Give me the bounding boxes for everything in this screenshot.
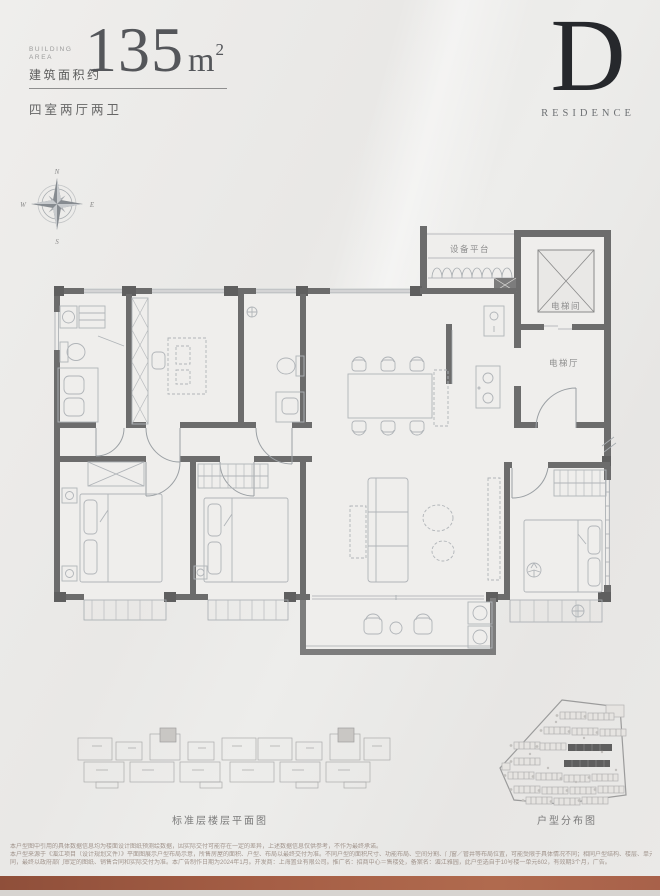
compass-n: N [54,168,60,176]
floorplan-poster: BUILDING AREA 建筑面积约 135 m 2 四室两厅两卫 D RES… [0,0,660,896]
building-area-eng-line1: BUILDING [29,46,73,54]
disclaimer-line-2: 本户型来源于《湄江项目（设计规划文件）》平面图展示户型布局示意，所售房屋的面积、… [10,851,652,859]
building-area-eng-label: BUILDING AREA [29,46,73,61]
distribution-diagram [490,692,640,810]
brand-block: D RESIDENCE [533,6,643,119]
area-value: 135 [85,18,184,82]
standard-floor-caption: 标准层楼层平面图 [138,812,302,827]
highlighted-buildings [564,744,612,767]
equipment-platform-label: 设备平台 [450,244,490,254]
standard-floor-diagram [62,722,398,798]
area-figure: 135 m 2 [85,18,224,82]
disclaimer-line-1: 本户型图中引用的具体数据信息均为楼面设计图纸预测绘数据，因实际交付可能存在一定的… [10,843,652,851]
compass-w: W [20,201,27,209]
disclaimer-line-3: 同，最终以政府部门审定的图纸、销售合同和实际交付为准。本广告制作日期为2024年… [10,859,652,867]
accent-bar [0,876,660,890]
brand-word: RESIDENCE [533,108,643,119]
elevator-hall-label: 电梯厅 [549,358,579,368]
brand-letter: D [533,6,643,106]
distribution-caption: 户型分布图 [505,812,629,827]
header-divider [29,88,227,89]
area-superscript: 2 [215,40,224,60]
accent-bar-under [0,890,660,896]
area-unit: m [188,42,214,80]
elevator-room-label: 电梯间 [551,301,581,311]
building-area-eng-line2: AREA [29,54,73,62]
layout-spec: 四室两厅两卫 [29,99,122,118]
compass-e: E [89,201,95,209]
floor-plan-svg: 设备平台 电梯间 电梯厅 [42,220,626,668]
